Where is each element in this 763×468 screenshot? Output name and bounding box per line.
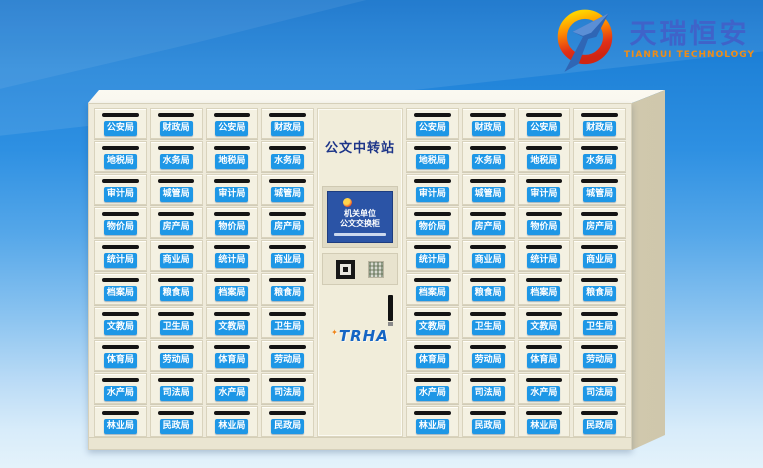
locker-door: 物价局 xyxy=(406,207,459,238)
locker-door: 文教局 xyxy=(94,307,147,338)
locker-door: 水务局 xyxy=(462,141,515,172)
locker-label: 公安局 xyxy=(416,121,449,136)
document-slot xyxy=(414,345,451,349)
locker-door: 体育局 xyxy=(94,340,147,371)
document-slot xyxy=(581,312,618,316)
locker-door: 商业局 xyxy=(573,240,626,271)
document-slot xyxy=(470,179,507,183)
document-slot xyxy=(526,179,563,183)
locker-door: 卫生局 xyxy=(573,307,626,338)
locker-label: 城管局 xyxy=(472,187,505,202)
locker-door: 地税局 xyxy=(406,141,459,172)
document-slot xyxy=(269,312,306,316)
locker-door: 卫生局 xyxy=(150,307,203,338)
locker-label: 水务局 xyxy=(271,154,304,169)
locker-label: 统计局 xyxy=(104,253,137,268)
document-slot xyxy=(470,146,507,150)
locker-grid: 公安局地税局审计局物价局统计局档案局文教局体育局水产局林业局财政局水务局城管局房… xyxy=(94,108,626,437)
locker-label: 民政局 xyxy=(271,419,304,434)
cabinet-front-face: 公安局地税局审计局物价局统计局档案局文教局体育局水产局林业局财政局水务局城管局房… xyxy=(88,103,632,450)
locker-label: 地税局 xyxy=(215,154,248,169)
document-slot xyxy=(526,245,563,249)
locker-door: 财政局 xyxy=(573,108,626,139)
document-slot xyxy=(102,312,139,316)
locker-label: 档案局 xyxy=(527,286,560,301)
document-slot xyxy=(581,212,618,216)
locker-door: 水务局 xyxy=(261,141,314,172)
locker-label: 审计局 xyxy=(416,187,449,202)
document-slot xyxy=(158,245,195,249)
locker-column-7: 公安局地税局审计局物价局统计局档案局文教局体育局水产局林业局 xyxy=(518,108,571,437)
console-title: 公文中转站 xyxy=(325,137,395,156)
document-slot xyxy=(414,212,451,216)
locker-door: 民政局 xyxy=(150,406,203,437)
locker-label: 公安局 xyxy=(527,121,560,136)
locker-label: 档案局 xyxy=(104,286,137,301)
locker-label: 体育局 xyxy=(104,353,137,368)
document-slot xyxy=(470,378,507,382)
locker-label: 粮食局 xyxy=(160,286,193,301)
document-slot xyxy=(581,179,618,183)
document-slot xyxy=(414,278,451,282)
document-slot xyxy=(526,312,563,316)
document-exchange-cabinet: 公安局地税局审计局物价局统计局档案局文教局体育局水产局林业局财政局水务局城管局房… xyxy=(88,88,665,456)
locker-column-4: 财政局水务局城管局房产局商业局粮食局卫生局劳动局司法局民政局 xyxy=(261,108,314,437)
locker-label: 统计局 xyxy=(215,253,248,268)
product-render: 天瑞恒安 TIANRUI TECHNOLOGY 公安局地税局审计局物价局统计局档… xyxy=(0,0,763,468)
locker-door: 林业局 xyxy=(94,406,147,437)
locker-door: 商业局 xyxy=(261,240,314,271)
locker-door: 卫生局 xyxy=(462,307,515,338)
locker-door: 林业局 xyxy=(518,406,571,437)
document-slot xyxy=(414,378,451,382)
locker-door: 地税局 xyxy=(94,141,147,172)
locker-label: 财政局 xyxy=(160,121,193,136)
locker-door: 统计局 xyxy=(206,240,259,271)
locker-door: 体育局 xyxy=(518,340,571,371)
screen-text-line1: 机关单位 xyxy=(344,209,376,219)
locker-door: 劳动局 xyxy=(462,340,515,371)
locker-door: 档案局 xyxy=(518,273,571,304)
locker-label: 公安局 xyxy=(215,121,248,136)
locker-door: 物价局 xyxy=(94,207,147,238)
locker-door: 审计局 xyxy=(518,174,571,205)
document-slot xyxy=(470,278,507,282)
locker-label: 物价局 xyxy=(104,220,137,235)
locker-label: 水务局 xyxy=(160,154,193,169)
document-slot xyxy=(158,312,195,316)
locker-door: 档案局 xyxy=(406,273,459,304)
document-slot xyxy=(158,146,195,150)
locker-door: 商业局 xyxy=(150,240,203,271)
locker-door: 司法局 xyxy=(573,373,626,404)
document-slot xyxy=(102,245,139,249)
locker-door: 文教局 xyxy=(406,307,459,338)
locker-label: 审计局 xyxy=(215,187,248,202)
document-slot xyxy=(269,245,306,249)
door-lock xyxy=(388,322,393,326)
locker-label: 财政局 xyxy=(583,121,616,136)
document-slot xyxy=(214,278,251,282)
locker-label: 司法局 xyxy=(583,386,616,401)
document-slot xyxy=(102,146,139,150)
locker-door: 司法局 xyxy=(150,373,203,404)
document-slot xyxy=(269,278,306,282)
document-slot xyxy=(414,245,451,249)
locker-label: 体育局 xyxy=(527,353,560,368)
locker-label: 房产局 xyxy=(271,220,304,235)
locker-door: 文教局 xyxy=(206,307,259,338)
locker-label: 林业局 xyxy=(527,419,560,434)
locker-door: 财政局 xyxy=(462,108,515,139)
door-brand-mark: ✦TRHA xyxy=(318,327,402,345)
document-slot xyxy=(414,113,451,117)
locker-door: 城管局 xyxy=(150,174,203,205)
locker-label: 公安局 xyxy=(104,121,137,136)
brand-name-en: TIANRUI TECHNOLOGY xyxy=(624,51,755,60)
locker-label: 财政局 xyxy=(472,121,505,136)
document-slot xyxy=(581,345,618,349)
locker-door: 财政局 xyxy=(150,108,203,139)
locker-label: 文教局 xyxy=(416,320,449,335)
locker-door: 体育局 xyxy=(406,340,459,371)
document-slot xyxy=(414,146,451,150)
locker-label: 司法局 xyxy=(271,386,304,401)
document-slot xyxy=(102,113,139,117)
locker-label: 地税局 xyxy=(104,154,137,169)
document-slot xyxy=(214,312,251,316)
locker-label: 水务局 xyxy=(472,154,505,169)
locker-label: 卫生局 xyxy=(472,320,505,335)
locker-label: 房产局 xyxy=(472,220,505,235)
reader-panel xyxy=(322,253,398,285)
locker-label: 卫生局 xyxy=(160,320,193,335)
locker-door: 商业局 xyxy=(462,240,515,271)
locker-label: 城管局 xyxy=(160,187,193,202)
document-slot xyxy=(526,411,563,415)
document-slot xyxy=(102,179,139,183)
locker-door: 文教局 xyxy=(518,307,571,338)
locker-door: 民政局 xyxy=(462,406,515,437)
console-screen: 机关单位 公文交换柜 xyxy=(327,191,393,243)
locker-door: 房产局 xyxy=(150,207,203,238)
locker-group-right: 公安局地税局审计局物价局统计局档案局文教局体育局水产局林业局财政局水务局城管局房… xyxy=(406,108,626,437)
console-door: ✦TRHA xyxy=(318,285,402,436)
document-slot xyxy=(581,278,618,282)
locker-door: 民政局 xyxy=(573,406,626,437)
locker-label: 审计局 xyxy=(527,187,560,202)
locker-label: 档案局 xyxy=(215,286,248,301)
locker-label: 物价局 xyxy=(416,220,449,235)
document-slot xyxy=(269,345,306,349)
locker-door: 水产局 xyxy=(206,373,259,404)
locker-label: 审计局 xyxy=(104,187,137,202)
document-slot xyxy=(102,212,139,216)
door-handle xyxy=(388,295,393,321)
locker-door: 审计局 xyxy=(94,174,147,205)
locker-label: 卫生局 xyxy=(583,320,616,335)
locker-door: 统计局 xyxy=(406,240,459,271)
locker-label: 司法局 xyxy=(160,386,193,401)
document-slot xyxy=(158,378,195,382)
locker-door: 公安局 xyxy=(206,108,259,139)
locker-column-6: 财政局水务局城管局房产局商业局粮食局卫生局劳动局司法局民政局 xyxy=(462,108,515,437)
document-slot xyxy=(470,312,507,316)
locker-label: 劳动局 xyxy=(271,353,304,368)
document-slot xyxy=(269,179,306,183)
locker-door: 房产局 xyxy=(261,207,314,238)
locker-door: 公安局 xyxy=(94,108,147,139)
document-slot xyxy=(581,146,618,150)
locker-label: 商业局 xyxy=(271,253,304,268)
document-slot xyxy=(470,411,507,415)
locker-label: 林业局 xyxy=(416,419,449,434)
central-console: 公文中转站 机关单位 公文交换柜 xyxy=(317,108,403,437)
document-slot xyxy=(158,411,195,415)
document-slot xyxy=(526,113,563,117)
locker-door: 房产局 xyxy=(462,207,515,238)
document-slot xyxy=(102,411,139,415)
locker-label: 劳动局 xyxy=(472,353,505,368)
document-slot xyxy=(581,113,618,117)
locker-column-5: 公安局地税局审计局物价局统计局档案局文教局体育局水产局林业局 xyxy=(406,108,459,437)
document-slot xyxy=(414,312,451,316)
locker-door: 财政局 xyxy=(261,108,314,139)
document-slot xyxy=(214,245,251,249)
spark-icon: ✦ xyxy=(331,328,339,337)
locker-door: 劳动局 xyxy=(261,340,314,371)
locker-door: 水产局 xyxy=(518,373,571,404)
document-slot xyxy=(414,179,451,183)
document-slot xyxy=(214,411,251,415)
qr-code-icon xyxy=(336,260,355,279)
locker-door: 体育局 xyxy=(206,340,259,371)
document-slot xyxy=(214,378,251,382)
document-slot xyxy=(214,345,251,349)
locker-label: 司法局 xyxy=(472,386,505,401)
locker-label: 商业局 xyxy=(160,253,193,268)
locker-label: 民政局 xyxy=(160,419,193,434)
locker-label: 水务局 xyxy=(583,154,616,169)
locker-door: 地税局 xyxy=(206,141,259,172)
document-slot xyxy=(581,378,618,382)
document-slot xyxy=(158,345,195,349)
document-slot xyxy=(158,278,195,282)
document-slot xyxy=(470,245,507,249)
locker-label: 粮食局 xyxy=(472,286,505,301)
national-emblem-icon xyxy=(343,198,352,207)
locker-door: 粮食局 xyxy=(150,273,203,304)
locker-label: 水产局 xyxy=(416,386,449,401)
instruction-sticker-icon xyxy=(368,261,384,278)
locker-door: 物价局 xyxy=(518,207,571,238)
locker-label: 城管局 xyxy=(271,187,304,202)
document-slot xyxy=(269,378,306,382)
ring-arrow-logo-icon xyxy=(552,6,618,76)
locker-column-2: 财政局水务局城管局房产局商业局粮食局卫生局劳动局司法局民政局 xyxy=(150,108,203,437)
locker-label: 地税局 xyxy=(527,154,560,169)
locker-label: 劳动局 xyxy=(160,353,193,368)
locker-door: 司法局 xyxy=(462,373,515,404)
locker-label: 档案局 xyxy=(416,286,449,301)
locker-label: 林业局 xyxy=(104,419,137,434)
locker-label: 财政局 xyxy=(271,121,304,136)
locker-door: 地税局 xyxy=(518,141,571,172)
locker-label: 体育局 xyxy=(215,353,248,368)
brand-name-cn: 天瑞恒安 xyxy=(629,21,749,49)
locker-label: 地税局 xyxy=(416,154,449,169)
document-slot xyxy=(214,113,251,117)
locker-door: 城管局 xyxy=(573,174,626,205)
locker-door: 林业局 xyxy=(406,406,459,437)
locker-label: 房产局 xyxy=(583,220,616,235)
document-slot xyxy=(470,113,507,117)
locker-label: 城管局 xyxy=(583,187,616,202)
document-slot xyxy=(214,179,251,183)
document-slot xyxy=(581,411,618,415)
locker-door: 审计局 xyxy=(406,174,459,205)
locker-door: 卫生局 xyxy=(261,307,314,338)
screen-recess: 机关单位 公文交换柜 xyxy=(322,186,398,248)
document-slot xyxy=(102,278,139,282)
locker-door: 物价局 xyxy=(206,207,259,238)
document-slot xyxy=(269,212,306,216)
locker-door: 公安局 xyxy=(518,108,571,139)
locker-label: 水产局 xyxy=(215,386,248,401)
locker-label: 劳动局 xyxy=(583,353,616,368)
locker-door: 审计局 xyxy=(206,174,259,205)
document-slot xyxy=(269,146,306,150)
document-slot xyxy=(414,411,451,415)
locker-label: 林业局 xyxy=(215,419,248,434)
locker-label: 水产局 xyxy=(527,386,560,401)
locker-label: 粮食局 xyxy=(583,286,616,301)
document-slot xyxy=(526,345,563,349)
locker-door: 档案局 xyxy=(94,273,147,304)
locker-door: 劳动局 xyxy=(150,340,203,371)
locker-column-3: 公安局地税局审计局物价局统计局档案局文教局体育局水产局林业局 xyxy=(206,108,259,437)
locker-label: 统计局 xyxy=(416,253,449,268)
locker-door: 统计局 xyxy=(94,240,147,271)
locker-door: 水务局 xyxy=(150,141,203,172)
locker-door: 城管局 xyxy=(261,174,314,205)
locker-door: 水务局 xyxy=(573,141,626,172)
locker-door: 粮食局 xyxy=(261,273,314,304)
document-slot xyxy=(269,411,306,415)
document-slot xyxy=(214,146,251,150)
locker-door: 城管局 xyxy=(462,174,515,205)
locker-label: 文教局 xyxy=(104,320,137,335)
screen-taskbar xyxy=(334,233,385,236)
locker-door: 房产局 xyxy=(573,207,626,238)
locker-label: 物价局 xyxy=(527,220,560,235)
document-slot xyxy=(269,113,306,117)
document-slot xyxy=(158,212,195,216)
document-slot xyxy=(526,278,563,282)
locker-door: 粮食局 xyxy=(462,273,515,304)
locker-label: 文教局 xyxy=(215,320,248,335)
document-slot xyxy=(581,245,618,249)
screen-text-line2: 公文交换柜 xyxy=(340,219,380,229)
locker-label: 物价局 xyxy=(215,220,248,235)
document-slot xyxy=(158,179,195,183)
document-slot xyxy=(158,113,195,117)
locker-label: 房产局 xyxy=(160,220,193,235)
locker-door: 水产局 xyxy=(406,373,459,404)
document-slot xyxy=(526,378,563,382)
locker-door: 劳动局 xyxy=(573,340,626,371)
locker-label: 卫生局 xyxy=(271,320,304,335)
document-slot xyxy=(102,378,139,382)
locker-column-8: 财政局水务局城管局房产局商业局粮食局卫生局劳动局司法局民政局 xyxy=(573,108,626,437)
locker-door: 公安局 xyxy=(406,108,459,139)
locker-label: 民政局 xyxy=(583,419,616,434)
locker-group-left: 公安局地税局审计局物价局统计局档案局文教局体育局水产局林业局财政局水务局城管局房… xyxy=(94,108,314,437)
document-slot xyxy=(102,345,139,349)
document-slot xyxy=(526,146,563,150)
locker-door: 档案局 xyxy=(206,273,259,304)
brand-logo: 天瑞恒安 TIANRUI TECHNOLOGY xyxy=(552,6,755,76)
locker-door: 粮食局 xyxy=(573,273,626,304)
locker-door: 民政局 xyxy=(261,406,314,437)
locker-label: 商业局 xyxy=(583,253,616,268)
locker-label: 民政局 xyxy=(472,419,505,434)
locker-door: 水产局 xyxy=(94,373,147,404)
cabinet-base xyxy=(89,437,631,449)
document-slot xyxy=(470,345,507,349)
locker-label: 商业局 xyxy=(472,253,505,268)
locker-column-1: 公安局地税局审计局物价局统计局档案局文教局体育局水产局林业局 xyxy=(94,108,147,437)
locker-label: 文教局 xyxy=(527,320,560,335)
locker-label: 粮食局 xyxy=(271,286,304,301)
locker-label: 体育局 xyxy=(416,353,449,368)
locker-label: 统计局 xyxy=(527,253,560,268)
locker-door: 林业局 xyxy=(206,406,259,437)
document-slot xyxy=(470,212,507,216)
document-slot xyxy=(214,212,251,216)
document-slot xyxy=(526,212,563,216)
locker-label: 水产局 xyxy=(104,386,137,401)
locker-door: 司法局 xyxy=(261,373,314,404)
locker-door: 统计局 xyxy=(518,240,571,271)
